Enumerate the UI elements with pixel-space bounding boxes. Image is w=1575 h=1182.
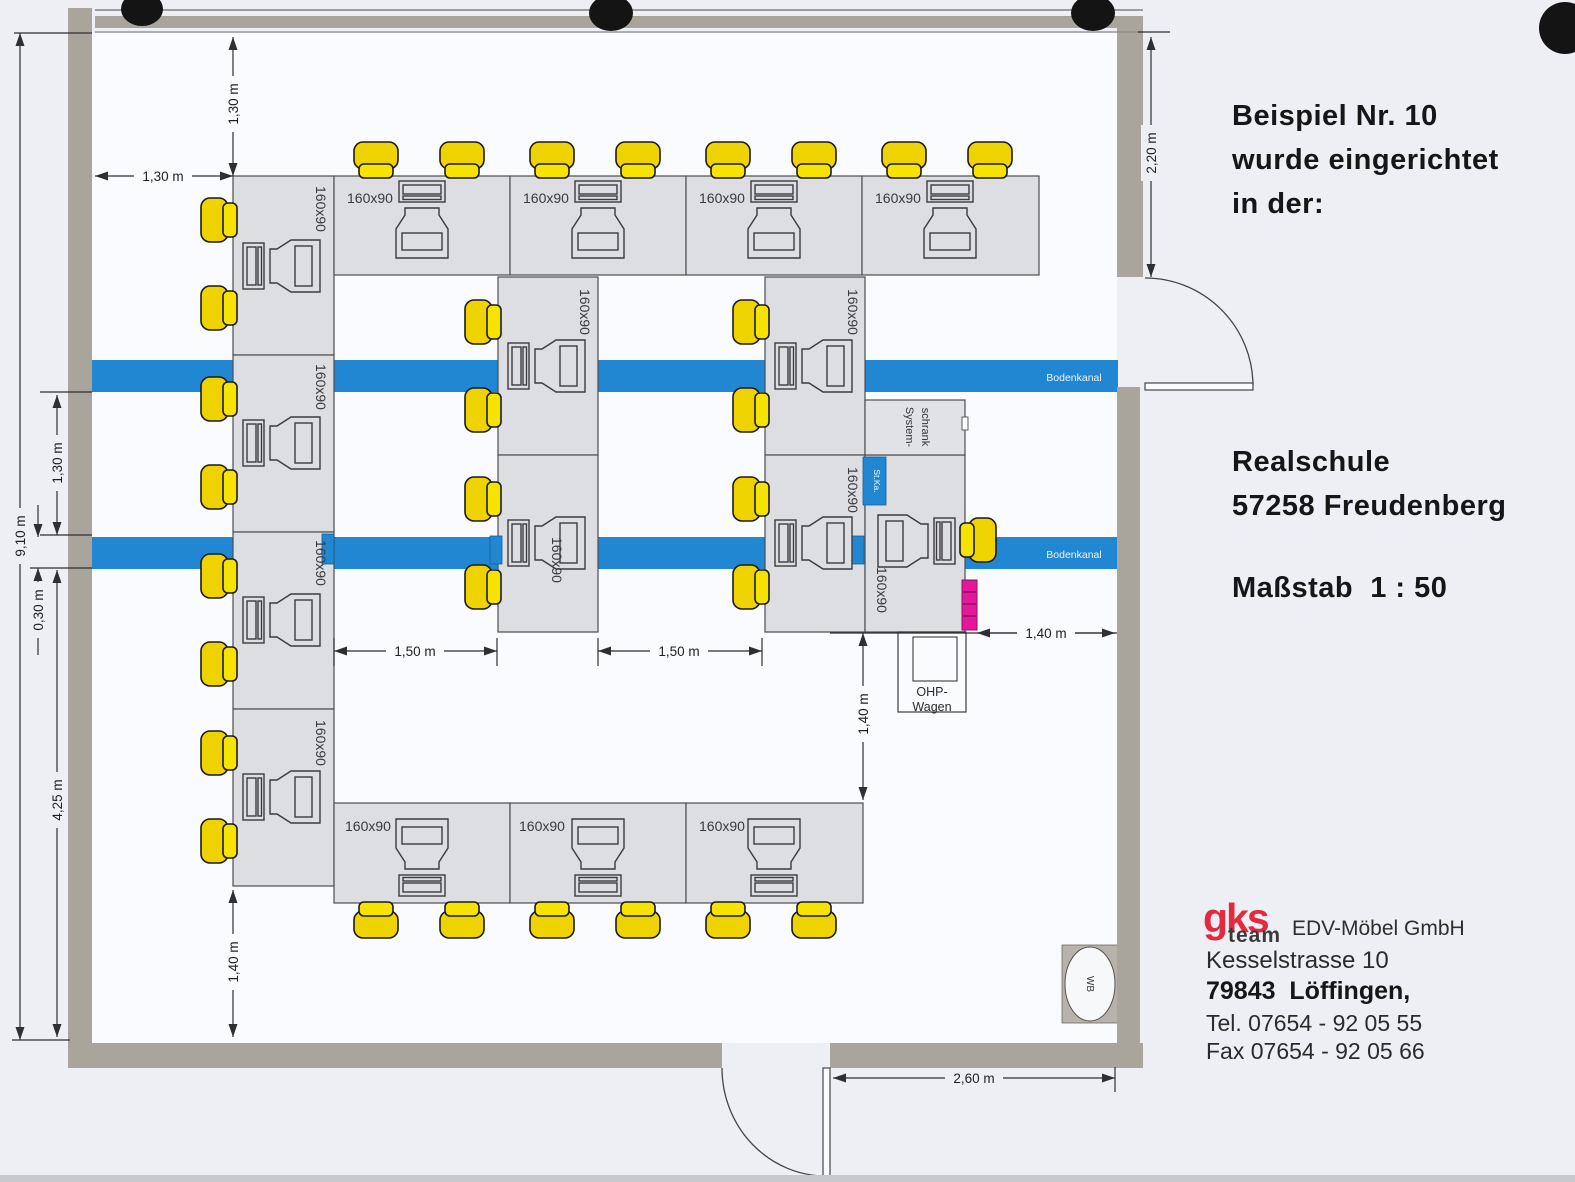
desk-size-label: 160x90	[345, 818, 391, 834]
desk-size-label: 160x90	[577, 289, 593, 335]
dimension-arrow	[833, 1074, 846, 1083]
dimension-label: 1,40 m	[856, 693, 871, 734]
chair	[882, 142, 926, 178]
dimension-label: 4,25 m	[50, 779, 65, 820]
chair-seat	[487, 570, 501, 604]
company-street: Kesselstrasse 10	[1206, 947, 1389, 975]
dimension-arrow	[1102, 1074, 1115, 1083]
desk-size-label: 160x90	[313, 540, 329, 586]
desk-size-label: 160x90	[549, 537, 565, 583]
dimension-arrow	[53, 570, 62, 583]
dimension-label: 1,50 m	[658, 644, 699, 659]
chair-seat	[223, 824, 237, 858]
floor-channel-1-label: Bodenkanal	[1046, 372, 1101, 384]
chair	[465, 477, 501, 521]
desk-size-label: 160x90	[519, 818, 565, 834]
title-line-2: wurde eingerichtet	[1232, 144, 1499, 177]
door-arc-right	[1145, 278, 1253, 385]
printer-magenta	[962, 580, 977, 630]
chair	[733, 300, 769, 344]
chair-seat	[711, 902, 745, 916]
system-cabinet-label-1: System-	[903, 407, 915, 448]
chair	[201, 198, 237, 242]
chair	[201, 465, 237, 509]
chair-seat	[887, 164, 921, 178]
chair	[792, 142, 836, 178]
chair	[201, 286, 237, 330]
chair-seat	[755, 482, 769, 516]
chair	[354, 142, 398, 178]
dimension-arrow	[53, 395, 62, 408]
chair	[733, 565, 769, 609]
dimension-arrow	[53, 1024, 62, 1037]
door-leaf-bottom	[823, 1068, 830, 1176]
dimension-label: 2,60 m	[953, 1071, 994, 1086]
chair-seat	[621, 902, 655, 916]
dimension-label: 1,30 m	[50, 442, 65, 483]
chair	[201, 731, 237, 775]
chair-seat	[797, 164, 831, 178]
channel-tag	[852, 536, 864, 564]
chair	[465, 300, 501, 344]
chair	[733, 388, 769, 432]
chair	[201, 554, 237, 598]
chair-seat	[223, 736, 237, 770]
chair-seat	[711, 164, 745, 178]
floor-channel-2-label: Bodenkanal	[1046, 549, 1101, 561]
chair	[616, 142, 660, 178]
wall-left	[68, 8, 92, 1068]
desk-size-label: 160x90	[313, 186, 329, 232]
chair	[616, 902, 660, 938]
dimension-arrow	[1147, 264, 1156, 277]
scale-label: Maßstab 1 : 50	[1232, 572, 1447, 605]
chair	[960, 518, 996, 562]
desk-size-label: 160x90	[313, 720, 329, 766]
scanned-floorplan-page: Bodenkanal Bodenkanal System- schrank St…	[0, 0, 1575, 1182]
chair	[201, 642, 237, 686]
chair	[968, 142, 1012, 178]
wall-right-lower	[1117, 387, 1140, 1068]
punch-hole	[1539, 2, 1575, 54]
system-cabinet-handle	[962, 417, 968, 430]
dimension-arrow	[16, 1027, 25, 1040]
chair-seat	[535, 902, 569, 916]
dimension-arrow	[1147, 37, 1156, 50]
door-arc-bottom	[722, 1068, 826, 1176]
chair-seat	[445, 902, 479, 916]
wash-basin: WB	[1062, 945, 1118, 1023]
gks-logo-team: team	[1228, 925, 1281, 946]
chair-seat	[755, 305, 769, 339]
chair	[465, 565, 501, 609]
chair	[201, 377, 237, 421]
chair-seat	[755, 393, 769, 427]
system-cabinet: System- schrank	[865, 400, 968, 455]
dimension-label: 1,30 m	[226, 83, 241, 124]
chair	[733, 477, 769, 521]
dimension-label: 1,50 m	[394, 644, 435, 659]
chair-seat	[535, 164, 569, 178]
chair-seat	[223, 470, 237, 504]
chair	[440, 902, 484, 938]
desk-size-label: 160x90	[347, 190, 393, 206]
desk-size-label: 160x90	[875, 190, 921, 206]
chair-seat	[487, 305, 501, 339]
system-cabinet-label-2: schrank	[919, 408, 931, 447]
chair	[530, 902, 574, 938]
chair-seat	[223, 559, 237, 593]
chair-seat	[797, 902, 831, 916]
chair	[440, 142, 484, 178]
chair-seat	[487, 482, 501, 516]
chair	[201, 819, 237, 863]
chair	[706, 142, 750, 178]
dimension-label: 1,30 m	[142, 169, 183, 184]
desk-size-label: 160x90	[699, 190, 745, 206]
ohp-label-1: OHP-	[916, 685, 947, 699]
dimension-label: 1,40 m	[226, 941, 241, 982]
company-tel: Tel. 07654 - 92 05 55	[1206, 1010, 1422, 1037]
chair-seat	[359, 164, 393, 178]
chair-seat	[223, 382, 237, 416]
title-line-1: Beispiel Nr. 10	[1232, 100, 1438, 133]
chair-seat	[223, 203, 237, 237]
ohp-label-2: Wagen	[912, 700, 951, 714]
title-line-3: in der:	[1232, 188, 1324, 221]
wall-right-upper	[1117, 16, 1143, 277]
location-line-2: 57258 Freudenberg	[1232, 490, 1506, 523]
chair	[465, 388, 501, 432]
company-fax: Fax 07654 - 92 05 66	[1206, 1038, 1425, 1065]
dimension-arrow	[16, 33, 25, 46]
desk-size-label: 160x90	[313, 364, 329, 410]
dimension-label: 0,30 m	[31, 589, 46, 630]
desk-size-label: 160x90	[699, 818, 745, 834]
scan-edge	[0, 1175, 1575, 1182]
st-ka-label: St.Ka.	[872, 469, 882, 492]
company-city: 79843 Löffingen,	[1206, 977, 1410, 1006]
dimension-arrow	[34, 568, 43, 581]
location-line-1: Realschule	[1232, 446, 1390, 479]
chair-seat	[487, 393, 501, 427]
chair	[706, 902, 750, 938]
desk-size-label: 160x90	[845, 289, 861, 335]
chair-seat	[445, 164, 479, 178]
dimension-arrow	[53, 522, 62, 535]
chair-seat	[960, 523, 974, 557]
chair-seat	[223, 647, 237, 681]
dimension-label: 9,10 m	[13, 515, 28, 556]
chair-seat	[359, 902, 393, 916]
desk-size-label: 160x90	[523, 190, 569, 206]
chair-seat	[973, 164, 1007, 178]
channel-tag	[490, 536, 502, 564]
wall-bottom-left	[68, 1043, 722, 1068]
chair	[530, 142, 574, 178]
desk-size-label: 160x90	[845, 467, 861, 513]
company-name: EDV-Möbel GmbH	[1292, 917, 1465, 941]
desk-size-label: 160x90	[874, 567, 890, 613]
wall-bottom-right	[830, 1043, 1143, 1068]
chair-seat	[755, 570, 769, 604]
chair-seat	[223, 291, 237, 325]
chair	[354, 902, 398, 938]
dimension-label: 1,40 m	[1025, 626, 1066, 641]
chair-seat	[621, 164, 655, 178]
chair	[792, 902, 836, 938]
desk	[498, 455, 598, 632]
door-leaf-right	[1145, 383, 1253, 390]
dimension-label: 2,20 m	[1144, 132, 1159, 173]
wash-basin-label: WB	[1084, 976, 1095, 992]
